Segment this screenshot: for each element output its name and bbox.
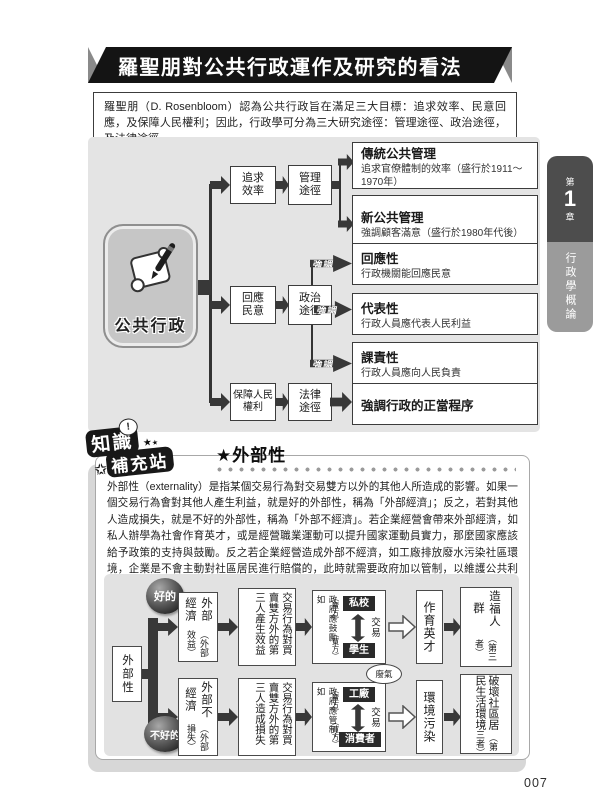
outcome-box-1a: 傳統公共管理 追求官僚體制的效率（盛行於1911～1970年） <box>352 142 538 189</box>
outcome-1a-desc: 追求官僚體制的效率（盛行於1911～1970年） <box>361 163 529 189</box>
goal-box-1: 追求效率 <box>230 166 276 204</box>
approach-2-label: 政治途徑 <box>298 292 322 318</box>
approach-box-1: 管理途徑 <box>288 165 332 205</box>
exchange-arrow-icon <box>351 614 365 642</box>
goal-3-label: 保障人民權利 <box>233 390 273 414</box>
outcome-1a-title: 傳統公共管理 <box>361 143 529 162</box>
page-title-banner: 羅聖朋對公共行政運作及研究的看法 <box>88 47 512 83</box>
good-buyer-tag: 學生 <box>343 643 375 658</box>
goal-box-3: 保障人民權利 <box>230 383 276 421</box>
bad-seller-tag: 工廠 <box>343 687 375 702</box>
arrow-to-goal-2 <box>210 296 230 314</box>
root-connector <box>198 280 211 295</box>
good-label: 好的 <box>154 588 176 604</box>
page-number: 007 <box>524 776 548 790</box>
bad-buyer-tag: 消費者 <box>339 732 381 747</box>
bad-label: 不好的 <box>150 727 180 742</box>
approach-3-label: 法律途徑 <box>298 389 322 415</box>
chapter-title: 行政學概論 <box>562 252 578 322</box>
outcome-box-2c: 課責性 行政人員應向人民負責 <box>352 342 538 385</box>
good-final: 造福人群 <box>470 588 502 629</box>
bad-result: 環境污染 <box>421 691 438 743</box>
good-final-sub: （第三者） <box>473 629 499 666</box>
outcome-2c-title: 課責性 <box>361 347 529 366</box>
good-final-box: 造福人群 （第三者） <box>460 587 512 667</box>
outcome-2a-title: 回應性 <box>361 248 529 267</box>
chapter-number: 1 <box>564 188 576 210</box>
gas-label: 廢氣 <box>375 668 392 680</box>
ext-root-label: 外部性 <box>119 654 135 695</box>
ext-root-box: 外部性 <box>112 646 142 702</box>
outcome-box-3: 強調行政的正當程序 <box>352 383 538 425</box>
branch-line-1 <box>339 161 341 225</box>
good-gov-box: 政府應鼓勵，如 （賣方） 私校 交易 （買方） 學生 <box>312 590 386 664</box>
section-heading: ★外部性 <box>216 441 286 466</box>
gas-bubble: 廢氣 <box>366 664 402 684</box>
intro-box: 羅聖朋（D. Rosenbloom）認為公共行政旨在滿足三大目標：追求效率、民意… <box>93 92 517 139</box>
bad-final-box: 破壞社區居民生活環境 （第三者） <box>460 674 512 754</box>
outcome-2b-desc: 行政人員應代表人民利益 <box>361 318 529 331</box>
approach-box-2: 政治途徑 <box>288 285 332 325</box>
outcome-2b-title: 代表性 <box>361 298 529 317</box>
chapter-suffix: 章 <box>565 210 574 223</box>
bad-final-sub: （第三者） <box>473 730 499 753</box>
exchange-arrow-icon <box>351 704 365 732</box>
outcome-2a-desc: 行政機關能回應民意 <box>361 268 529 281</box>
ext-arrow-good <box>156 618 178 636</box>
good-effect-box: 交易行為對買賣雙方外的第三人產生效益 <box>238 588 296 666</box>
good-arrow-2 <box>296 618 312 636</box>
good-type-box: 外部經濟 （外部效益） <box>178 592 218 662</box>
good-arrow-3 <box>444 618 461 636</box>
arrow-emphasize-2c: 強調 <box>310 355 352 372</box>
dotted-divider <box>214 467 516 472</box>
arrow-outcome-3 <box>330 392 352 412</box>
bad-exchange-label: 交易 <box>367 707 381 728</box>
good-hollow-arrow-icon <box>388 615 416 639</box>
good-effect: 交易行為對買賣雙方外的第三人產生效益 <box>254 592 293 655</box>
externality-diagram: 外部性 好的 不好的 外部經濟 （外部效益） 交易行為對買賣雙方外的第三人產生效… <box>104 574 519 756</box>
arrow-to-approach-2 <box>275 296 289 314</box>
bad-result-box: 環境污染 <box>416 680 443 754</box>
bad-effect: 交易行為對買賣雙方外的第三人造成損失 <box>254 682 293 745</box>
bad-final: 破壞社區居民生活環境 <box>473 675 499 730</box>
chapter-tab-number: 第 1 章 <box>547 156 593 242</box>
arrow-to-goal-3 <box>210 393 230 411</box>
good-type-sub: （外部效益） <box>185 626 211 661</box>
root-box: 公共行政 <box>103 224 198 348</box>
good-type: 外部經濟 <box>182 593 214 626</box>
good-exchange-label: 交易 <box>367 617 381 638</box>
goal-1-label: 追求效率 <box>241 172 265 198</box>
bad-type-box: 外部不經濟 （外部損失） <box>178 678 218 756</box>
root-label: 公共行政 <box>114 312 186 336</box>
approach-box-3: 法律途徑 <box>288 383 332 421</box>
bad-effect-box: 交易行為對買賣雙方外的第三人造成損失 <box>238 678 296 756</box>
good-seller-role: （賣方） <box>330 594 341 624</box>
bad-gov-box: 政府應管制，如 （賣方） 工廠 交易 （買方） 消費者 <box>312 682 386 752</box>
outcome-2c-desc: 行政人員應向人民負責 <box>361 367 529 380</box>
emphasize-label-2a: 強調 <box>312 257 335 271</box>
bad-type: 外部不經濟 <box>182 679 214 720</box>
bad-type-sub: （外部損失） <box>185 720 211 755</box>
outcome-box-2b: 代表性 行政人員應代表人民利益 <box>352 293 538 335</box>
chapter-tab-title: 行政學概論 <box>547 242 593 332</box>
good-result-box: 作育英才 <box>416 590 443 664</box>
scroll-pen-icon <box>121 234 185 302</box>
approach-1-label: 管理途徑 <box>298 172 322 198</box>
bad-arrow-1 <box>218 708 238 726</box>
outcome-box-2a: 回應性 行政機關能回應民意 <box>352 243 538 285</box>
arrow-to-goal-1 <box>210 176 230 194</box>
arrow-emphasize-2a: 強調 <box>310 255 352 272</box>
outcome-3-title: 強調行政的正當程序 <box>361 395 529 414</box>
good-buyer-role: （買方） <box>330 630 341 660</box>
flowchart-panel: 公共行政 追求效率 管理途徑 傳統公共管理 追求官僚體制的效率（盛行於1911～… <box>88 137 540 432</box>
chapter-tab: 第 1 章 行政學概論 <box>547 156 593 332</box>
arrow-to-approach-1 <box>275 176 289 194</box>
good-result: 作育英才 <box>421 601 438 653</box>
goal-box-2: 回應民意 <box>230 286 276 324</box>
outcome-1b-desc: 強調顧客滿意（盛行於1980年代後） <box>361 227 529 240</box>
bad-hollow-arrow-icon <box>388 705 416 729</box>
good-arrow-1 <box>218 618 238 636</box>
goal-2-label: 回應民意 <box>241 292 265 318</box>
star-icon: ★ <box>152 439 159 447</box>
outcome-1b-title: 新公共管理 <box>361 207 529 226</box>
emphasize-label-2c: 強調 <box>312 357 335 371</box>
arrow-to-approach-3 <box>275 393 289 411</box>
page-title: 羅聖朋對公共行政運作及研究的看法 <box>118 51 462 80</box>
bad-seller-role: （賣方） <box>330 686 341 716</box>
bad-arrow-3 <box>444 708 461 726</box>
good-seller-tag: 私校 <box>343 596 375 611</box>
bad-arrow-2 <box>296 708 312 726</box>
